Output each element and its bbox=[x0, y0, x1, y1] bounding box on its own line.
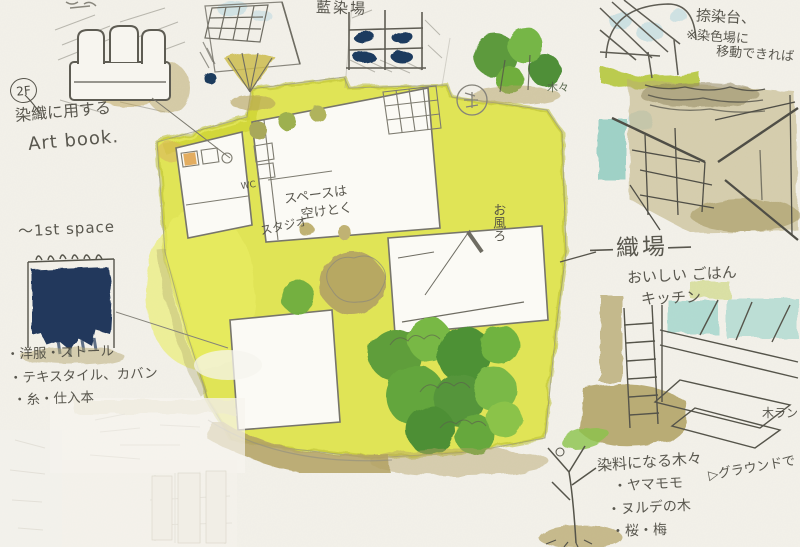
wc-label: WC bbox=[240, 181, 256, 193]
sketch-canvas: 2F 染織に用する Art book. 藍染場 捺染台、 ※染色場に 移動できれ… bbox=[0, 0, 800, 547]
printing-table-label-line1: 捺染台、 bbox=[696, 7, 757, 27]
ink-dot bbox=[204, 72, 216, 84]
weaving-kitchen-line2: キッチン bbox=[641, 289, 702, 308]
indigo-area-label: 藍染場 bbox=[316, 0, 368, 17]
whiteout-patch bbox=[194, 350, 262, 380]
dye-tree-item-3: ・桜・梅 bbox=[611, 523, 668, 540]
trees-note-label: 木々 bbox=[547, 82, 569, 94]
watercolor-sketch-page: { "palette": { "paper": "#f3f1ea", "site… bbox=[0, 0, 800, 547]
weaving-place-title: ―織場― bbox=[590, 234, 695, 263]
bath-label: お風ろ bbox=[490, 203, 504, 265]
wood-note-label: 木ラン bbox=[762, 407, 798, 420]
shop-item-3: ・糸・仕入本 bbox=[13, 391, 94, 409]
